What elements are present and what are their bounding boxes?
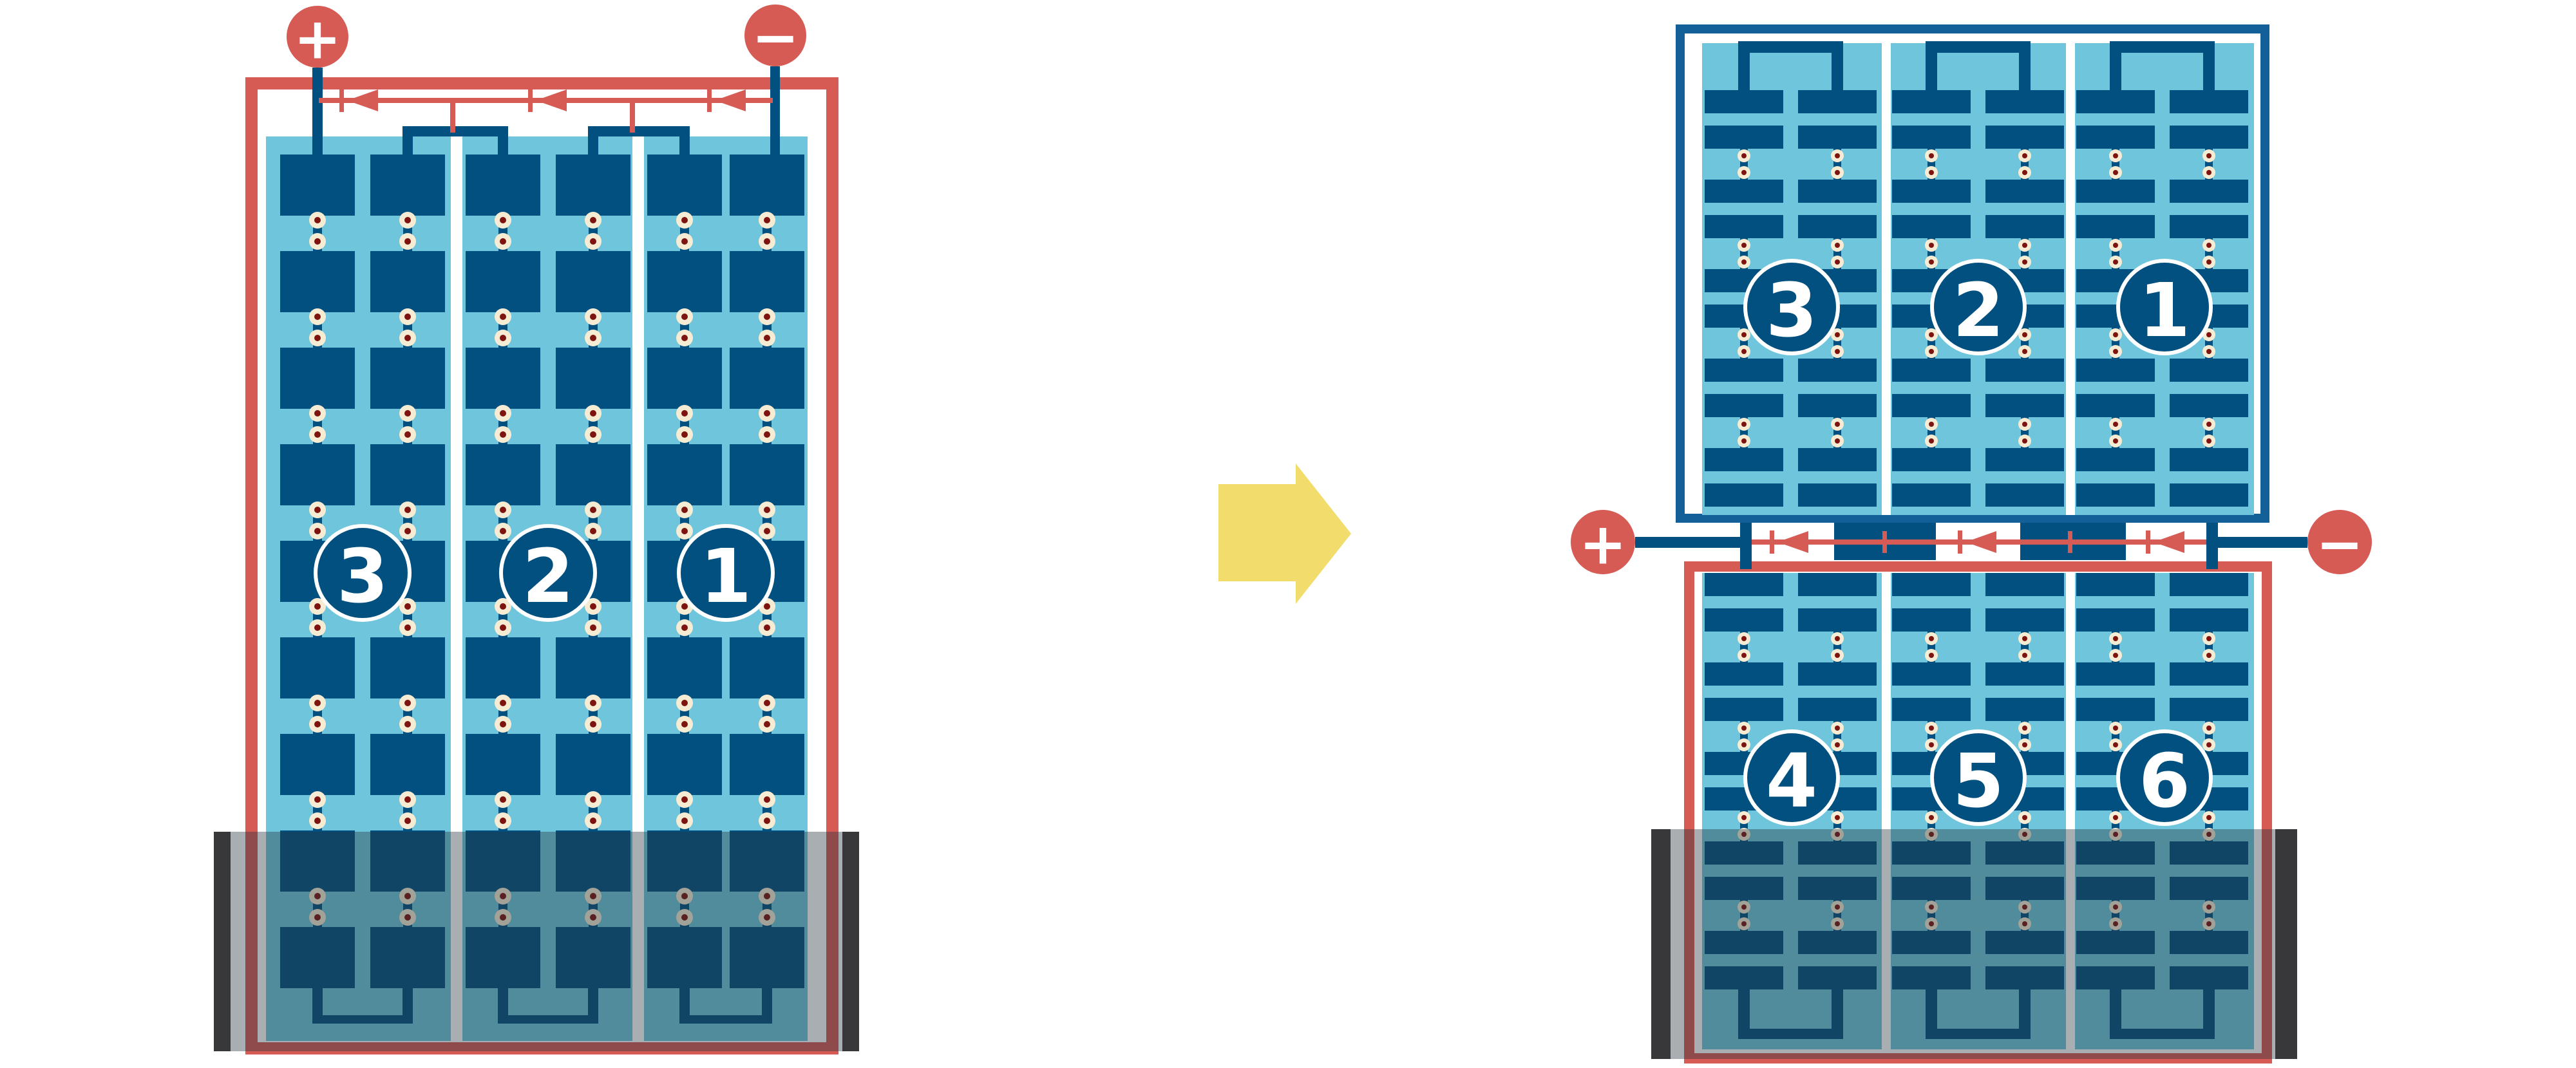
string-label-1: 1 [700,534,752,620]
string-label-3: 3 [337,534,388,620]
negative-lead [770,66,780,171]
shade-bar-left [1651,829,1671,1059]
left-bypass-diode-line [319,89,773,133]
plus-terminal-label: + [1579,511,1627,577]
transform-arrow-icon [1218,464,1351,604]
shade-overlay [1651,829,2297,1059]
plus-terminal-label: + [294,6,341,72]
right-shade [1651,829,2297,1059]
minus-terminal-label: − [2316,511,2363,577]
left-panel-full-cell-module: 3 2 1 + − [214,5,859,1052]
column-separator [2066,43,2075,515]
positive-lead [312,68,323,171]
bottom-half-string-badges: 4 5 6 [1745,731,2211,825]
shade-overlay [214,832,859,1051]
junction-end-bar [2206,523,2218,569]
left-positive-terminal: + [287,6,348,72]
shade-bar-left [214,832,231,1051]
left-string-badges: 3 2 1 [316,526,773,620]
string-label-2: 2 [1953,268,2004,354]
left-negative-terminal: − [744,5,806,71]
negative-bus-bar [2218,537,2307,548]
string-label-6: 6 [2139,738,2190,825]
top-half-string-badges: 3 2 1 [1745,261,2211,354]
shade-bar-right [842,832,859,1051]
string-label-4: 4 [1766,738,1817,825]
positive-bus-bar [1635,537,1740,548]
shade-bar-right [2275,829,2297,1059]
string-label-2: 2 [522,534,574,620]
diagram-svg: 3 2 1 + − 3 [0,0,2576,1068]
column-separator [1882,43,1891,515]
right-positive-terminal: + [1571,510,1635,577]
string-label-5: 5 [1953,738,2004,825]
junction-tick [1882,531,1887,553]
right-top-half-panel: 3 2 1 [1680,29,2265,518]
minus-terminal-label: − [752,5,799,71]
junction-end-bar [1740,523,1752,569]
right-negative-terminal: − [2307,510,2372,577]
half-cut-module-diagram: 3 2 1 + − 3 [0,0,2576,1068]
string-label-3: 3 [1766,268,1817,354]
string-label-1: 1 [2139,268,2190,354]
left-shade [214,832,859,1051]
junction-tick [2068,531,2072,553]
